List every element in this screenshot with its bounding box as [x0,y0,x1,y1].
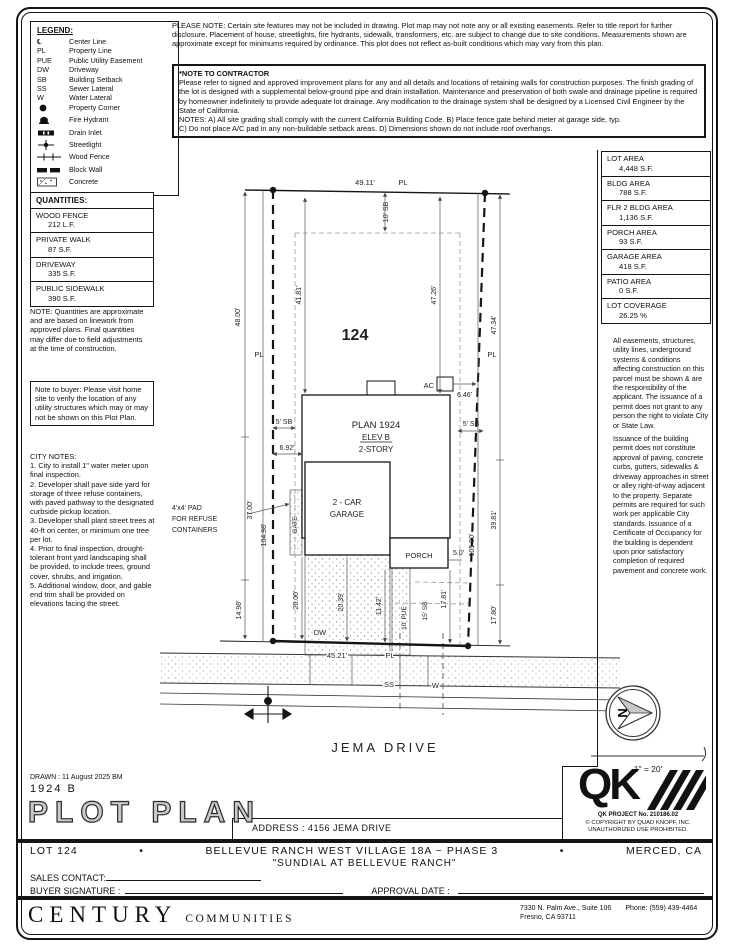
city-notes-title: CITY NOTES: [30,452,156,461]
drawn-line: DRAWN : 11 August 2025 BM [30,774,123,781]
quantities-note: NOTE: Quantities are approximate and are… [30,307,150,353]
dim-porch-side: 5.0' [453,550,464,557]
signature-row: BUYER SIGNATURE : APPROVAL DATE : [30,884,704,896]
city-label: MERCED, CA [626,845,702,857]
qk-logo: QK [578,760,638,810]
water-symbol: W [37,93,69,102]
qk-unauthorized: UNAUTHORIZED USE PROHIBITED. [564,827,712,834]
lot-number: 124 [342,327,369,344]
bullet: • [560,845,565,857]
dim-setback-left: 5' SB [276,419,293,426]
century-sub: COMMUNITIES [185,913,294,925]
plot-drawing: 49.11' PL 10' SB 48.00' 37.00' 104.98' 1… [160,165,620,795]
dim-top-setback: 10' SB [383,201,390,222]
dim-pue: 10' PUE [401,606,408,630]
please-note-text: PLEASE NOTE: Certain site features may n… [172,21,702,49]
lot-row: LOT 124 • BELLEVUE RANCH WEST VILLAGE 18… [30,845,702,857]
buyer-signature-blank [125,884,343,894]
legend-item: Concrete [37,177,173,189]
dim-front-setback: 15' SB [422,602,429,621]
approval-date-blank [458,884,704,894]
qk-project-number: QK PROJECT No. 210186.02 [564,812,712,820]
title-block-rule [18,839,712,843]
note-to-contractor-box: *NOTE TO CONTRACTOR Please refer to sign… [172,64,706,138]
dim-porch-depth: 17.81' [441,590,448,609]
approval-date-label: APPROVAL DATE : [371,886,449,896]
block-wall-icon [37,165,69,177]
dim-driveway-width: 20.00' [293,591,300,610]
side-note-para2: Issuance of the building permit does not… [613,434,709,575]
century-address2: Fresno, CA 93711 [520,913,697,922]
pl-label-left: PL [254,350,263,359]
dim-top: 49.11' [355,178,375,187]
ac-pad [437,377,453,391]
garage-label-2: GARAGE [330,510,364,519]
century-address1: 7330 N. Palm Ave., Suite 106 [520,904,611,913]
dim-bottom: 45.21' [327,651,348,660]
streetlight-symbol [245,686,291,723]
quantities-title: QUANTITIES: [30,192,154,209]
legend-item: ℄Center Line [37,37,173,46]
dim-house-left: 41.81' [296,286,303,305]
legend-item: Fire Hydrant [37,115,173,127]
north-letter: N [615,708,630,717]
century-phone: Phone: (559) 439-4464 [625,904,697,913]
legend-item: DWDriveway [37,65,173,74]
side-notes: All easements, structures, utility lines… [613,336,709,575]
buyer-note-box: Note to buyer: Please visit home site to… [30,381,154,426]
dim-right-outer: 47.34' [491,316,498,335]
legend-item: Wood Fence [37,152,173,164]
address-line: ADDRESS : 4156 JEMA DRIVE [252,823,392,833]
story-label: 2-STORY [359,445,394,454]
pl-label-top: PL [398,178,407,187]
dim-ac-gap: 6.46' [457,392,472,399]
qk-logo-block: QK QK PROJECT No. 210186.02 © COPYRIGHT … [564,768,712,838]
garage-outline [305,462,390,555]
fire-hydrant-icon [37,115,69,127]
contractor-note-title: *NOTE TO CONTRACTOR [179,69,699,78]
w-label: W [432,681,440,690]
dim-right-bottom: 17.80' [491,606,498,625]
driveway-symbol: DW [37,65,69,74]
setback-symbol: SB [37,75,69,84]
pue-symbol: PUE [37,56,69,65]
city-notes: CITY NOTES: 1. City to install 1" water … [30,452,156,608]
dim-gap-left: 6.92' [280,445,295,452]
quantities-box: QUANTITIES: WOOD FENCE212 L.F. PRIVATE W… [30,192,154,307]
address-box-top-line [232,818,563,819]
north-arrow: N [602,682,664,744]
city-notes-body: 1. City to install 1" water meter upon f… [30,461,156,608]
lot-label: LOT 124 [30,845,78,857]
refuse-pad-label-1: 4'x4' PAD [172,505,202,512]
legend-item: Drain Inlet [37,128,173,140]
plot-plan-sheet: LEGEND: ℄Center Line PLProperty Line PUE… [0,0,729,945]
streetlight-icon [37,140,69,152]
centerline-symbol: ℄ [37,37,69,46]
legend-box: LEGEND: ℄Center Line PLProperty Line PUE… [30,21,179,196]
dim-right-mid: 39.81' [491,511,498,530]
subdivision-label: BELLEVUE RANCH WEST VILLAGE 18A ~ PHASE … [206,845,499,857]
refuse-pad-label-3: CONTAINERS [172,527,218,534]
dim-right-full: 105.00' [469,534,476,557]
dim-left-mid: 37.00' [247,501,254,520]
sheet-title: PLOT PLAN [28,796,261,830]
legend-item: PUEPublic Utility Easement [37,56,173,65]
legend-title: LEGEND: [37,26,173,35]
dim-left-outer: 48.00' [235,308,242,327]
pl-label-bottom: PL [385,651,394,660]
dw-label: DW [314,628,327,637]
porch-label: PORCH [405,551,432,560]
legend-item: Block Wall [37,165,173,177]
century-logo: CENTURY COMMUNITIES [28,902,294,928]
refuse-pad-label-2: FOR REFUSE [172,516,217,523]
street-curb-lines [160,693,620,711]
wood-fence-icon [37,152,69,164]
qk-logo-stripes [642,770,706,810]
dim-left-full: 104.98' [261,524,268,547]
concrete-icon [37,177,69,189]
bullet: • [139,845,144,857]
footer-rule [18,896,712,900]
community-name: "SUNDIAL AT BELLEVUE RANCH" [0,858,729,869]
legend-item: PLProperty Line [37,46,173,55]
garage-label-1: 2 - CAR [333,498,362,507]
dim-house-right: 47.26' [431,286,438,305]
buyer-signature-label: BUYER SIGNATURE : [30,886,120,896]
gate-label: GATE [292,516,299,534]
plan-label: PLAN 1924 [352,420,401,431]
sales-contact-row: SALES CONTACT: [30,871,261,883]
quantity-row: PUBLIC SIDEWALK390 S.F. [30,281,154,307]
legend-item: WWater Lateral [37,93,173,102]
legend-item: SBBuilding Setback [37,75,173,84]
plan-number: 1924 B [30,783,77,795]
sales-contact-blank [106,871,261,881]
street-name: JEMA DRIVE [331,740,438,755]
dim-driveway-length: 20.39' [338,593,345,612]
ss-label: SS [384,680,394,689]
qk-copyright: © COPYRIGHT BY QUAD KNOPF, INC. [564,820,712,827]
pl-label-right: PL [487,350,496,359]
sales-contact-label: SALES CONTACT: [30,873,106,883]
quantity-row: DRIVEWAY335 S.F. [30,257,154,283]
contractor-note-body: Please refer to signed and approved impr… [179,78,699,133]
dim-setback-right: 5' SB [463,421,480,428]
quantity-row: PRIVATE WALK87 S.F. [30,232,154,258]
century-name: CENTURY [28,902,177,928]
legend-item: SSSewer Lateral [37,84,173,93]
dim-left-bottom: 14.98' [236,601,243,620]
dim-walk: 11.42' [376,597,383,615]
drain-inlet-icon [37,128,69,140]
column-divider [597,150,598,766]
legend-item: Property Corner [37,103,173,115]
property-line-symbol: PL [37,46,69,55]
elev-label: ELEV B [362,433,390,442]
side-note-para1: All easements, structures, utility lines… [613,336,709,430]
house-outline [302,377,453,568]
ac-label: AC [424,381,435,390]
property-corner-icon [37,103,69,115]
sewer-symbol: SS [37,84,69,93]
quantity-row: WOOD FENCE212 L.F. [30,208,154,234]
century-address-block: 7330 N. Palm Ave., Suite 106 Phone: (559… [520,904,697,922]
legend-item: Streetlight [37,140,173,152]
